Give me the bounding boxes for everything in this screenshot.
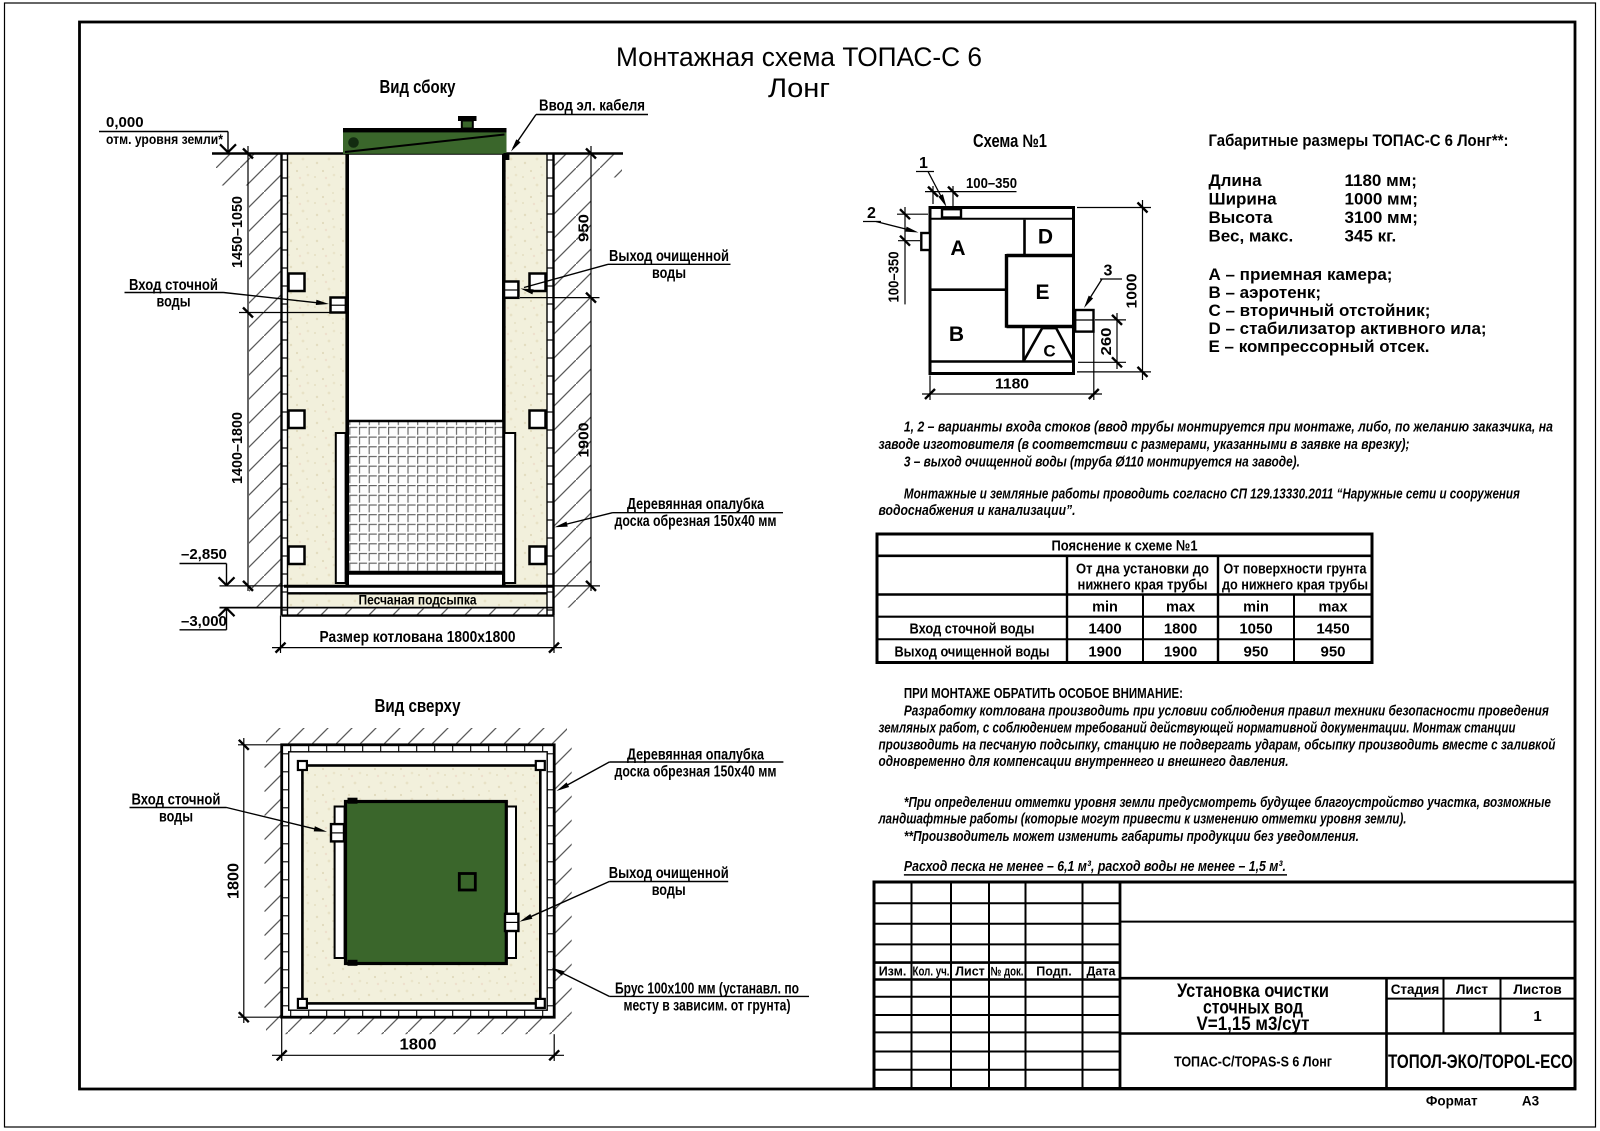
svg-text:1900: 1900 [1164, 644, 1197, 661]
svg-text:1400: 1400 [1088, 621, 1121, 638]
svg-text:A: A [950, 237, 965, 260]
svg-text:месту в зависим. от грунта): месту в зависим. от грунта) [624, 998, 791, 1015]
svg-text:1450–1050: 1450–1050 [229, 196, 246, 268]
svg-text:Дата: Дата [1087, 965, 1117, 979]
svg-text:1900: 1900 [1088, 644, 1121, 661]
svg-text:воды: воды [159, 809, 193, 826]
svg-text:Вход сточной: Вход сточной [129, 277, 218, 294]
svg-text:D: D [1038, 226, 1053, 249]
svg-text:Монтажная схема ТОПАС-С 6: Монтажная схема ТОПАС-С 6 [616, 42, 982, 72]
svg-text:1, 2 – варианты входа стоков: 1, 2 – варианты входа стоков (ввод трубы… [904, 418, 1553, 435]
svg-text:ТОПАС-С/TOPAS-S 6 Лонг: ТОПАС-С/TOPAS-S 6 Лонг [1174, 1054, 1332, 1071]
svg-text:Подп.: Подп. [1036, 965, 1071, 979]
svg-text:Брус 100х100 мм (устанавл. по: Брус 100х100 мм (устанавл. по [615, 981, 799, 998]
svg-text:Выход очищенной: Выход очищенной [609, 248, 729, 265]
svg-text:max: max [1318, 600, 1347, 616]
svg-text:Деревянная опалубка: Деревянная опалубка [627, 496, 764, 513]
svg-text:–2,850: –2,850 [181, 546, 227, 563]
svg-text:1450: 1450 [1316, 621, 1349, 638]
svg-text:1180 мм;: 1180 мм; [1345, 171, 1417, 190]
svg-text:Вход сточной воды: Вход сточной воды [910, 621, 1035, 638]
svg-text:*При определении отметки уровн: *При определении отметки уровня земли пр… [904, 794, 1551, 811]
svg-text:2: 2 [867, 205, 876, 222]
svg-text:Лонг: Лонг [768, 73, 830, 103]
svg-text:ТОПОЛ-ЭКО/TOPOL-ECO: ТОПОЛ-ЭКО/TOPOL-ECO [1388, 1052, 1573, 1073]
svg-text:B: B [949, 323, 964, 346]
svg-text:Е – компрессорный отсек.: Е – компрессорный отсек. [1209, 337, 1430, 356]
svg-text:1800: 1800 [1164, 621, 1197, 638]
svg-text:воды: воды [652, 882, 686, 899]
svg-text:Вес, макс.: Вес, макс. [1209, 227, 1294, 246]
svg-text:100–350: 100–350 [886, 252, 903, 303]
svg-text:доска обрезная 150х40 мм: доска обрезная 150х40 мм [615, 764, 777, 781]
svg-text:Ширина: Ширина [1209, 190, 1278, 209]
svg-text:1000 мм;: 1000 мм; [1345, 190, 1418, 209]
svg-text:воды: воды [652, 265, 686, 282]
svg-text:ландшафтные работы (которые мо: ландшафтные работы (которые могут привес… [878, 811, 1407, 828]
svg-text:Стадия: Стадия [1391, 982, 1440, 997]
svg-text:до нижнего края трубы: до нижнего края трубы [1222, 578, 1368, 594]
svg-text:доска обрезная 150х40 мм: доска обрезная 150х40 мм [615, 513, 777, 530]
svg-text:260: 260 [1098, 328, 1115, 356]
svg-text:3 – выход очищенной воды (труб: 3 – выход очищенной воды (труба Ø110 мон… [904, 454, 1300, 471]
svg-text:А – приемная камера;: А – приемная камера; [1209, 265, 1393, 284]
svg-text:Выход очищенной воды: Выход очищенной воды [895, 644, 1050, 661]
svg-text:D – стабилизатор активного ила: D – стабилизатор активного ила; [1209, 319, 1487, 338]
svg-text:1: 1 [1533, 1008, 1541, 1025]
svg-text:А3: А3 [1522, 1094, 1540, 1109]
svg-text:Деревянная опалубка: Деревянная опалубка [627, 747, 764, 764]
svg-text:Монтажные и земляные работы пр: Монтажные и земляные работы проводить со… [904, 485, 1520, 502]
svg-text:950: 950 [576, 214, 593, 242]
svg-text:1000: 1000 [1124, 274, 1141, 309]
svg-text:одновременно для компенсации в: одновременно для компенсации внутреннего… [879, 753, 1289, 770]
svg-text:1180: 1180 [995, 376, 1029, 393]
svg-text:Длина: Длина [1209, 171, 1263, 190]
svg-text:Лист: Лист [955, 965, 985, 979]
svg-text:345 кг.: 345 кг. [1345, 227, 1397, 246]
svg-text:Листов: Листов [1513, 982, 1561, 997]
svg-text:0,000: 0,000 [106, 114, 144, 131]
svg-text:**Производитель может изменить: **Производитель может изменить габариты … [904, 828, 1359, 845]
svg-text:Ввод эл. кабеля: Ввод эл. кабеля [539, 98, 645, 115]
svg-text:Схема №1: Схема №1 [973, 131, 1047, 151]
svg-text:Пояснение к схеме №1: Пояснение к схеме №1 [1052, 538, 1198, 555]
svg-text:производить на песчаную подсып: производить на песчаную подсыпку, станци… [879, 736, 1556, 753]
svg-text:ПРИ МОНТАЖЕ ОБРАТИТЬ ОСОБОЕ ВН: ПРИ МОНТАЖЕ ОБРАТИТЬ ОСОБОЕ ВНИМАНИЕ: [904, 685, 1183, 702]
svg-text:C: C [1043, 342, 1055, 361]
svg-text:1900: 1900 [576, 423, 593, 458]
svg-text:водоснабжения и канализации”.: водоснабжения и канализации”. [879, 502, 1076, 519]
svg-text:max: max [1166, 600, 1195, 616]
svg-text:Расход песка не менее – 6,1 м³: Расход песка не менее – 6,1 м³, расход в… [904, 858, 1286, 875]
svg-text:отм. уровня земли*: отм. уровня земли* [106, 132, 224, 147]
svg-text:min: min [1092, 600, 1118, 616]
svg-text:Кол. уч.: Кол. уч. [913, 965, 950, 979]
svg-text:В – аэротенк;: В – аэротенк; [1209, 283, 1322, 302]
svg-text:От поверхности грунта: От поверхности грунта [1224, 562, 1368, 578]
svg-text:1050: 1050 [1239, 621, 1272, 638]
svg-text:Изм.: Изм. [879, 965, 907, 979]
svg-text:Высота: Высота [1209, 208, 1274, 227]
svg-text:3: 3 [1104, 263, 1113, 280]
svg-text:заводе изготовителя (в соответ: заводе изготовителя (в соответствии с ра… [879, 436, 1410, 453]
svg-text:3100 мм;: 3100 мм; [1345, 208, 1418, 227]
svg-text:950: 950 [1243, 644, 1268, 661]
svg-text:Габаритные размеры ТОПАС-С 6 Л: Габаритные размеры ТОПАС-С 6 Лонг**: [1209, 131, 1509, 150]
svg-text:С – вторичный отстойник;: С – вторичный отстойник; [1209, 301, 1431, 320]
svg-text:1800: 1800 [400, 1037, 437, 1054]
svg-text:950: 950 [1320, 644, 1345, 661]
svg-text:От дна установки до: От дна установки до [1076, 562, 1209, 578]
svg-text:Лист: Лист [1456, 982, 1488, 997]
svg-text:1: 1 [919, 155, 928, 172]
svg-text:воды: воды [157, 294, 191, 311]
svg-text:Формат: Формат [1426, 1094, 1478, 1109]
svg-text:нижнего края трубы: нижнего края трубы [1078, 578, 1208, 594]
svg-text:1400–1800: 1400–1800 [229, 412, 246, 484]
svg-text:E: E [1035, 281, 1049, 304]
svg-text:V=1,15 м3/сут: V=1,15 м3/сут [1197, 1014, 1310, 1035]
svg-text:Песчаная подсыпка: Песчаная подсыпка [359, 593, 477, 608]
svg-text:Вход сточной: Вход сточной [132, 792, 221, 809]
svg-text:Вид сверху: Вид сверху [375, 696, 461, 716]
svg-text:Выход очищенной: Выход очищенной [609, 865, 729, 882]
svg-text:100–350: 100–350 [966, 175, 1017, 192]
svg-text:земляных работ, с соблюдением: земляных работ, с соблюдением требований… [879, 719, 1516, 736]
svg-text:Вид сбоку: Вид сбоку [380, 77, 456, 97]
svg-text:Размер котлована 1800х1800: Размер котлована 1800х1800 [320, 629, 516, 646]
svg-text:Разработку котлована производи: Разработку котлована производить при усл… [904, 703, 1549, 720]
svg-text:№ док.: № док. [991, 965, 1024, 979]
svg-text:min: min [1243, 600, 1269, 616]
svg-text:1800: 1800 [226, 863, 243, 899]
